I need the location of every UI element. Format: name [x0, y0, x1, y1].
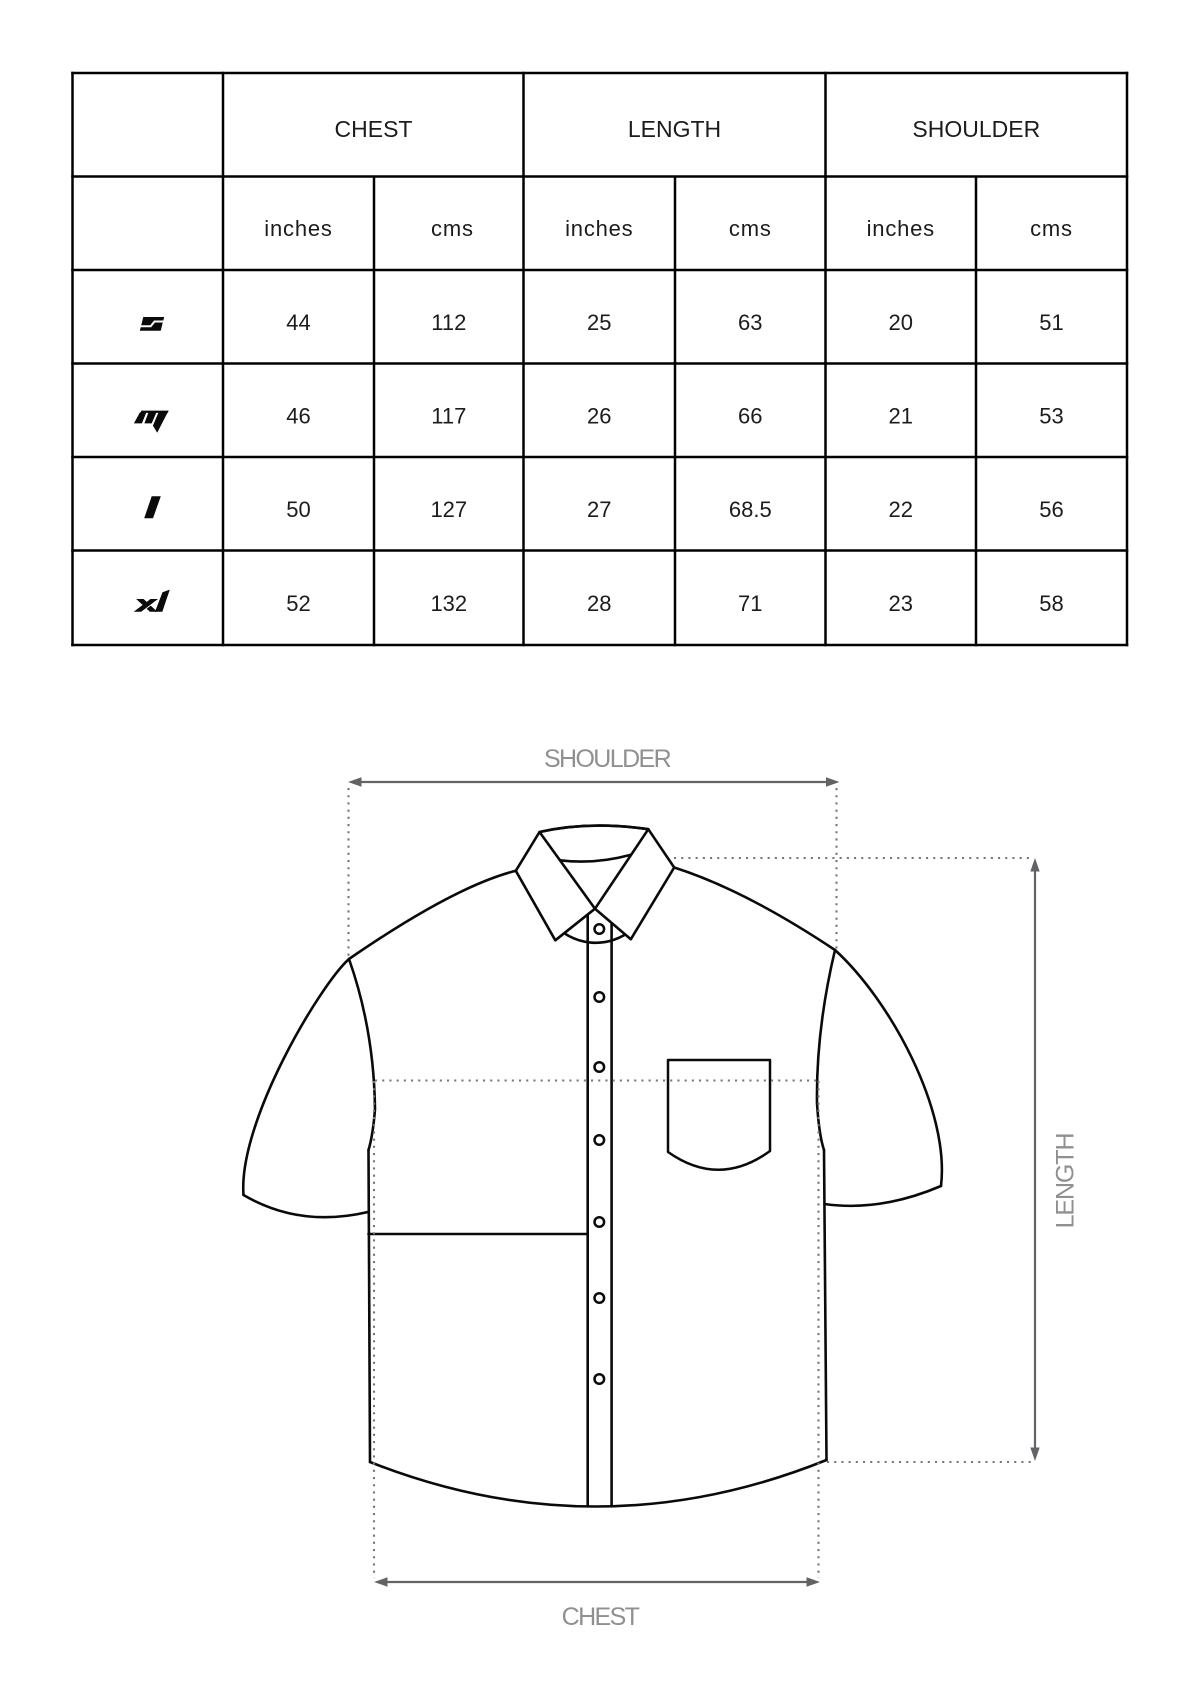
- svg-text:inches: inches: [867, 216, 935, 241]
- svg-text:127: 127: [430, 497, 467, 522]
- svg-text:SHOULDER: SHOULDER: [912, 116, 1040, 142]
- svg-text:44: 44: [286, 310, 310, 335]
- svg-text:68.5: 68.5: [729, 497, 772, 522]
- svg-text:27: 27: [587, 497, 611, 522]
- svg-text:26: 26: [587, 403, 611, 428]
- svg-text:117: 117: [431, 403, 466, 428]
- svg-text:22: 22: [889, 497, 913, 522]
- svg-text:58: 58: [1039, 591, 1063, 616]
- svg-text:cms: cms: [431, 216, 474, 241]
- svg-text:63: 63: [738, 310, 762, 335]
- svg-text:132: 132: [430, 591, 467, 616]
- svg-text:cms: cms: [729, 216, 772, 241]
- svg-text:inches: inches: [565, 216, 633, 241]
- svg-text:52: 52: [286, 591, 310, 616]
- svg-text:23: 23: [889, 591, 913, 616]
- svg-text:56: 56: [1039, 497, 1063, 522]
- svg-text:66: 66: [738, 403, 762, 428]
- svg-text:21: 21: [889, 403, 913, 428]
- svg-text:LENGTH: LENGTH: [628, 116, 721, 142]
- svg-text:SHOULDER: SHOULDER: [544, 745, 671, 773]
- svg-text:71: 71: [738, 591, 762, 616]
- svg-text:28: 28: [587, 591, 611, 616]
- svg-text:25: 25: [587, 310, 611, 335]
- svg-text:CHEST: CHEST: [562, 1603, 640, 1631]
- svg-text:inches: inches: [264, 216, 332, 241]
- svg-text:51: 51: [1039, 310, 1063, 335]
- svg-text:50: 50: [286, 497, 310, 522]
- svg-text:CHEST: CHEST: [335, 116, 413, 142]
- svg-text:112: 112: [431, 310, 466, 335]
- svg-text:20: 20: [889, 310, 913, 335]
- svg-text:cms: cms: [1030, 216, 1073, 241]
- svg-text:LENGTH: LENGTH: [1052, 1134, 1080, 1229]
- svg-text:46: 46: [286, 403, 310, 428]
- svg-text:53: 53: [1039, 403, 1063, 428]
